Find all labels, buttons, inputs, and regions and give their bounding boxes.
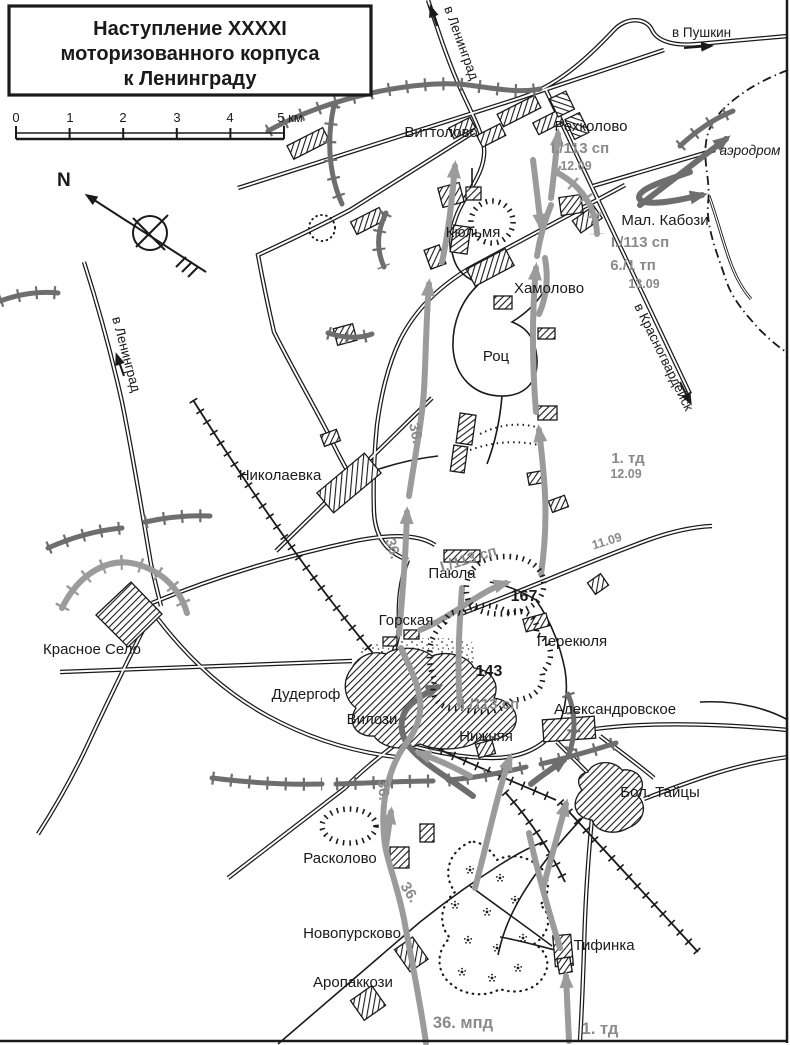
- unit-6-1-tp: 6./1 тп: [610, 257, 656, 274]
- unit-i113-rehkolovo: I./113 сп: [551, 140, 609, 157]
- place-vilozi: Вилози: [347, 711, 398, 728]
- place-aropakkozi: Аропаккози: [313, 974, 393, 991]
- place-mal-kabozi: Мал. Кабози: [621, 212, 708, 229]
- place-nikolaevka: Николаевка: [239, 467, 322, 484]
- place-perekyulya: Перекюля: [537, 633, 607, 650]
- scale-0: 0: [12, 110, 19, 125]
- place-nizhnyaya: Нижняя: [459, 728, 513, 745]
- north-label: N: [57, 170, 71, 191]
- date-rehkolovo: 12.09: [560, 159, 591, 173]
- place-kyulmya: Кюльмя: [446, 224, 501, 241]
- place-rehkolovo: Рехколово: [554, 118, 627, 135]
- unit-36-mpd: 36. мпд: [433, 1014, 494, 1032]
- place-gorskaya: Горская: [379, 612, 434, 629]
- unit-1td-mid: 1. тд: [611, 450, 645, 467]
- pocket-167-label: 167: [511, 588, 538, 605]
- title-line-2: моторизованного корпуса: [61, 43, 321, 65]
- military-map: N 0 1 2 3 4 5 км Наступление XXXXI мотор…: [0, 0, 790, 1045]
- map-page: N 0 1 2 3 4 5 км Наступление XXXXI мотор…: [0, 0, 790, 1045]
- place-hamolovo: Хамолово: [514, 280, 584, 297]
- title-box: Наступление XXXXI моторизованного корпус…: [9, 6, 371, 95]
- to-pushkin-label: в Пушкин: [672, 25, 731, 40]
- place-vittolovo: Виттолово: [404, 124, 477, 141]
- place-bol-taytsy: Бол. Тайцы: [620, 784, 700, 801]
- scale-5: 5 км: [277, 110, 303, 125]
- pocket-143-label: 143: [476, 663, 503, 680]
- scale-3: 3: [173, 110, 180, 125]
- date-kabozi: 13.09: [628, 277, 659, 291]
- title-line-3: к Ленинграду: [124, 68, 258, 90]
- place-raskolovo: Расколово: [303, 850, 377, 867]
- place-tifinka: Тифинка: [573, 937, 635, 954]
- place-aleksandrovskoe: Александровское: [554, 701, 676, 718]
- scale-1: 1: [66, 110, 73, 125]
- scale-2: 2: [119, 110, 126, 125]
- unit-i113-vilozi: I./113 сп: [461, 696, 519, 713]
- place-rots: Роц: [483, 348, 510, 365]
- place-dudergof: Дудергоф: [272, 686, 341, 703]
- unit-i113-kabozi: I./113 сп: [611, 234, 669, 251]
- airfield-label: аэродром: [720, 143, 781, 158]
- place-novopurskovo: Новопурсково: [303, 925, 401, 942]
- unit-1td-bottom: 1. тд: [582, 1020, 619, 1038]
- title-line-1: Наступление XXXXI: [93, 18, 287, 40]
- unit-36-c: 36.: [374, 779, 392, 801]
- place-krasnoe-selo: Красное Село: [43, 641, 141, 658]
- date-1td-mid: 12.09: [610, 467, 641, 481]
- scale-4: 4: [226, 110, 233, 125]
